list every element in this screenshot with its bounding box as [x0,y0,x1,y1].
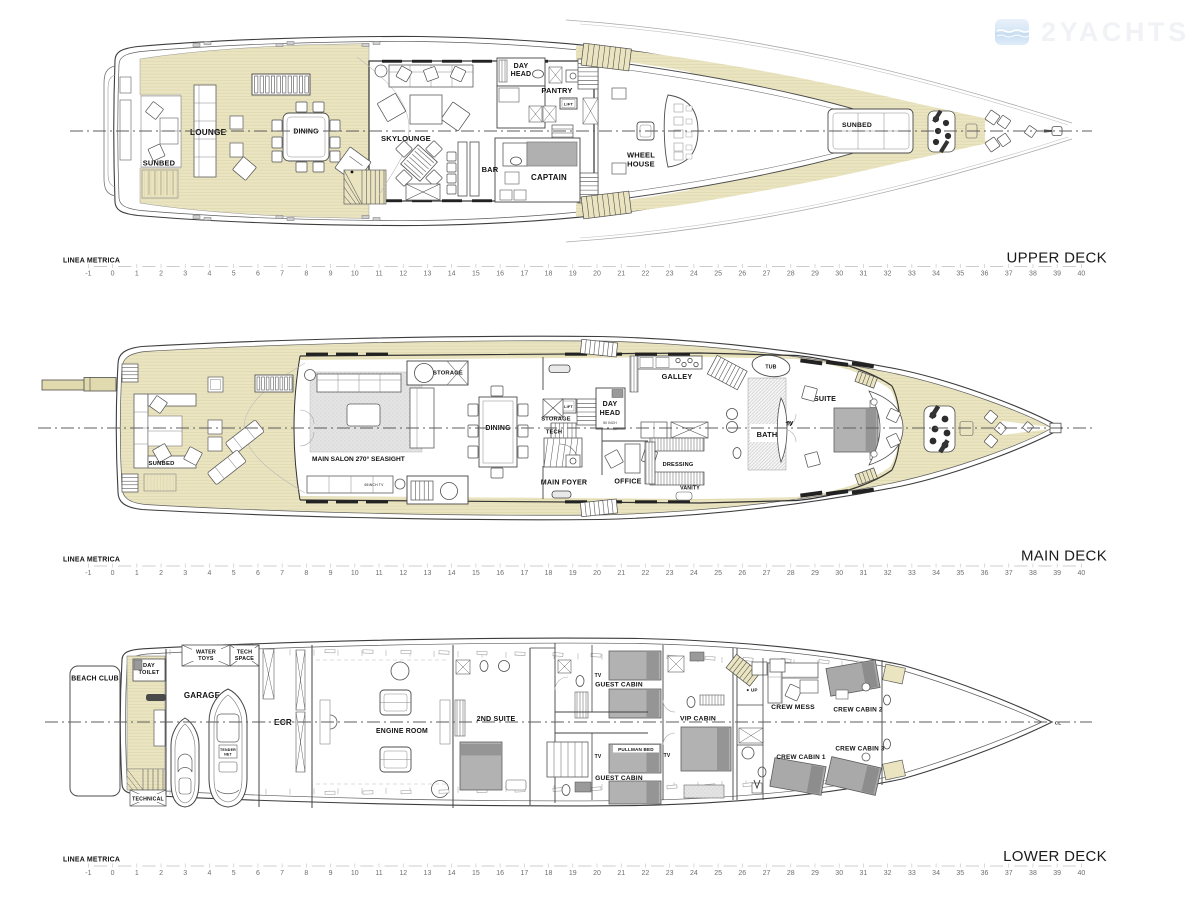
svg-text:STORAGE: STORAGE [541,417,570,423]
svg-text:17: 17 [520,570,528,577]
svg-text:-1: -1 [85,271,91,278]
svg-text:18: 18 [545,870,553,877]
svg-text:0: 0 [111,271,115,278]
svg-text:33: 33 [908,271,916,278]
svg-text:29: 29 [811,870,819,877]
svg-text:25: 25 [714,570,722,577]
svg-text:DAY: DAY [514,63,529,70]
svg-text:5: 5 [232,570,236,577]
svg-text:SUNBED: SUNBED [842,122,872,129]
svg-text:0: 0 [111,870,115,877]
svg-text:6: 6 [256,870,260,877]
svg-text:7: 7 [280,870,284,877]
svg-text:UPPER DECK: UPPER DECK [1006,250,1107,267]
svg-text:34: 34 [932,870,940,877]
svg-text:22: 22 [642,870,650,877]
svg-text:27: 27 [763,570,771,577]
svg-text:23: 23 [666,570,674,577]
svg-text:37: 37 [1005,271,1013,278]
svg-text:29: 29 [811,271,819,278]
svg-text:15: 15 [472,570,480,577]
svg-text:16: 16 [496,870,504,877]
svg-text:38: 38 [1029,271,1037,278]
svg-text:2YACHTS: 2YACHTS [1041,17,1190,47]
svg-text:23: 23 [666,271,674,278]
svg-text:31: 31 [860,271,868,278]
svg-text:LINEA METRICA: LINEA METRICA [63,557,120,564]
svg-text:19: 19 [569,870,577,877]
svg-text:65INCH TV: 65INCH TV [364,483,384,487]
svg-text:9: 9 [329,570,333,577]
svg-text:LINEA METRICA: LINEA METRICA [63,857,120,864]
svg-text:39: 39 [1053,271,1061,278]
svg-text:6: 6 [256,570,260,577]
svg-text:21: 21 [617,570,625,577]
svg-text:16: 16 [496,570,504,577]
svg-text:10: 10 [351,870,359,877]
svg-text:37: 37 [1005,570,1013,577]
svg-text:ENGINE ROOM: ENGINE ROOM [376,728,428,735]
svg-text:0: 0 [111,570,115,577]
svg-text:14: 14 [448,870,456,877]
svg-text:2: 2 [159,271,163,278]
svg-text:19: 19 [569,271,577,278]
svg-text:22: 22 [642,271,650,278]
svg-text:28: 28 [787,271,795,278]
svg-text:28: 28 [787,570,795,577]
svg-text:18: 18 [545,570,553,577]
svg-text:SUITE: SUITE [814,394,836,403]
svg-text:24: 24 [690,570,698,577]
svg-text:26: 26 [738,870,746,877]
svg-text:TECHNICAL: TECHNICAL [132,797,164,803]
svg-text:26: 26 [738,271,746,278]
svg-text:30: 30 [835,870,843,877]
svg-text:23: 23 [666,870,674,877]
svg-text:1: 1 [135,271,139,278]
svg-text:25: 25 [714,870,722,877]
svg-text:16: 16 [496,271,504,278]
svg-text:SUNBED: SUNBED [148,461,174,467]
svg-text:LOUNGE: LOUNGE [190,128,227,137]
svg-text:35: 35 [956,271,964,278]
svg-text:31: 31 [860,570,868,577]
svg-text:39: 39 [1053,570,1061,577]
svg-text:8: 8 [304,271,308,278]
svg-text:17: 17 [520,870,528,877]
svg-text:4: 4 [208,870,212,877]
svg-text:20: 20 [593,570,601,577]
svg-text:28: 28 [787,870,795,877]
svg-text:-1: -1 [85,570,91,577]
svg-text:PULLMAN BED: PULLMAN BED [618,747,654,752]
svg-text:35: 35 [956,570,964,577]
svg-text:HEAD: HEAD [600,410,621,417]
svg-text:24: 24 [690,271,698,278]
svg-text:50 INCH: 50 INCH [603,421,617,425]
svg-text:WATER: WATER [196,650,216,656]
svg-text:CREW MESS: CREW MESS [771,704,815,711]
svg-text:CREW CABIN 3: CREW CABIN 3 [835,746,885,753]
svg-text:PANTRY: PANTRY [541,86,572,95]
svg-text:BAR: BAR [482,165,499,174]
svg-text:3: 3 [183,870,187,877]
svg-text:25: 25 [714,271,722,278]
svg-text:38: 38 [1029,870,1037,877]
svg-text:10: 10 [351,570,359,577]
svg-text:4: 4 [208,570,212,577]
svg-text:TV: TV [595,673,602,679]
svg-text:20: 20 [593,870,601,877]
svg-text:HEAD: HEAD [511,71,532,78]
svg-text:TV: TV [595,754,602,760]
svg-text:10: 10 [351,271,359,278]
svg-text:29: 29 [811,570,819,577]
svg-text:VIP CABIN: VIP CABIN [680,716,716,723]
svg-text:DRESSING: DRESSING [663,462,694,468]
svg-text:STORAGE: STORAGE [433,371,463,377]
svg-text:17: 17 [520,271,528,278]
svg-text:32: 32 [884,570,892,577]
svg-text:5: 5 [232,870,236,877]
svg-text:LOWER DECK: LOWER DECK [1003,848,1107,865]
svg-text:33: 33 [908,870,916,877]
svg-text:36: 36 [981,570,989,577]
svg-text:DINING: DINING [485,425,510,432]
svg-text:NET: NET [224,753,232,757]
svg-text:ECR: ECR [274,718,292,727]
svg-text:21: 21 [617,870,625,877]
svg-text:35: 35 [956,870,964,877]
svg-text:CAPTAIN: CAPTAIN [531,173,567,182]
svg-text:1: 1 [135,870,139,877]
svg-text:LIFT: LIFT [564,405,573,409]
svg-text:GUEST CABIN: GUEST CABIN [595,775,643,782]
svg-text:5: 5 [232,271,236,278]
svg-text:7: 7 [280,271,284,278]
svg-text:30: 30 [835,271,843,278]
svg-text:WHEEL: WHEEL [627,151,655,160]
svg-text:32: 32 [884,870,892,877]
svg-text:14: 14 [448,570,456,577]
svg-text:3: 3 [183,570,187,577]
svg-text:8: 8 [304,870,308,877]
svg-text:34: 34 [932,570,940,577]
svg-text:12: 12 [399,570,407,577]
svg-text:9: 9 [329,870,333,877]
svg-text:1: 1 [135,570,139,577]
svg-text:32: 32 [884,271,892,278]
svg-text:SKYLOUNGE: SKYLOUNGE [381,134,431,143]
svg-text:DINING: DINING [293,129,318,136]
svg-text:HOUSE: HOUSE [627,160,655,169]
svg-text:27: 27 [763,870,771,877]
svg-text:OFFICE: OFFICE [614,478,641,486]
svg-text:BEACH CLUB: BEACH CLUB [71,676,119,683]
svg-text:38: 38 [1029,570,1037,577]
svg-text:36: 36 [981,870,989,877]
svg-text:18: 18 [545,271,553,278]
svg-text:TV: TV [785,422,792,428]
svg-text:11: 11 [375,870,382,877]
svg-text:2: 2 [159,870,163,877]
svg-text:MAIN FOYER: MAIN FOYER [541,479,588,487]
svg-text:DAY: DAY [143,663,155,669]
svg-text:39: 39 [1053,870,1061,877]
svg-text:BATH: BATH [757,430,778,439]
svg-text:3: 3 [183,271,187,278]
svg-text:6: 6 [256,271,260,278]
svg-text:33: 33 [908,570,916,577]
svg-text:GARAGE: GARAGE [184,691,221,700]
svg-text:SPACE: SPACE [235,656,254,662]
svg-text:TOILET: TOILET [139,670,160,676]
svg-text:13: 13 [424,870,432,877]
svg-text:14: 14 [448,271,456,278]
svg-text:11: 11 [375,271,382,278]
svg-text:37: 37 [1005,870,1013,877]
svg-text:15: 15 [472,271,480,278]
svg-text:31: 31 [860,870,868,877]
svg-text:TV: TV [664,753,671,759]
svg-text:40: 40 [1078,570,1086,577]
svg-text:30: 30 [835,570,843,577]
svg-text:● UP: ● UP [746,688,757,693]
svg-text:9: 9 [329,271,333,278]
svg-text:36: 36 [981,271,989,278]
svg-text:22: 22 [642,570,650,577]
svg-text:2: 2 [159,570,163,577]
svg-text:TENDER: TENDER [220,748,236,752]
svg-text:TECH: TECH [237,650,252,656]
svg-text:LINEA METRICA: LINEA METRICA [63,258,120,265]
svg-text:8: 8 [304,570,308,577]
svg-text:20: 20 [593,271,601,278]
svg-text:TUB: TUB [765,365,776,371]
svg-text:21: 21 [617,271,625,278]
svg-text:GUEST CABIN: GUEST CABIN [595,682,643,689]
svg-text:CREW CABIN 2: CREW CABIN 2 [833,707,883,714]
svg-text:19: 19 [569,570,577,577]
svg-text:15: 15 [472,870,480,877]
svg-text:-1: -1 [85,870,91,877]
svg-text:13: 13 [424,570,432,577]
svg-text:12: 12 [399,870,407,877]
svg-text:CL: CL [1055,721,1061,726]
svg-text:12: 12 [399,271,407,278]
svg-text:DAY: DAY [603,401,618,408]
svg-text:4: 4 [208,271,212,278]
svg-text:40: 40 [1078,271,1086,278]
svg-text:LIFT: LIFT [564,102,574,107]
svg-text:11: 11 [375,570,382,577]
svg-text:VANITY: VANITY [680,486,700,492]
svg-text:26: 26 [738,570,746,577]
svg-text:TECH: TECH [546,430,562,436]
svg-text:CREW CABIN 1: CREW CABIN 1 [776,754,826,761]
svg-text:MAIN SALON 270° SEASIGHT: MAIN SALON 270° SEASIGHT [312,455,405,463]
svg-text:SUNBED: SUNBED [143,159,176,168]
svg-text:40: 40 [1078,870,1086,877]
svg-text:TOYS: TOYS [198,656,214,662]
svg-text:13: 13 [424,271,432,278]
svg-text:GALLEY: GALLEY [662,372,693,381]
svg-text:MAIN DECK: MAIN DECK [1021,548,1107,565]
svg-text:24: 24 [690,870,698,877]
svg-text:7: 7 [280,570,284,577]
svg-text:34: 34 [932,271,940,278]
svg-text:27: 27 [763,271,771,278]
